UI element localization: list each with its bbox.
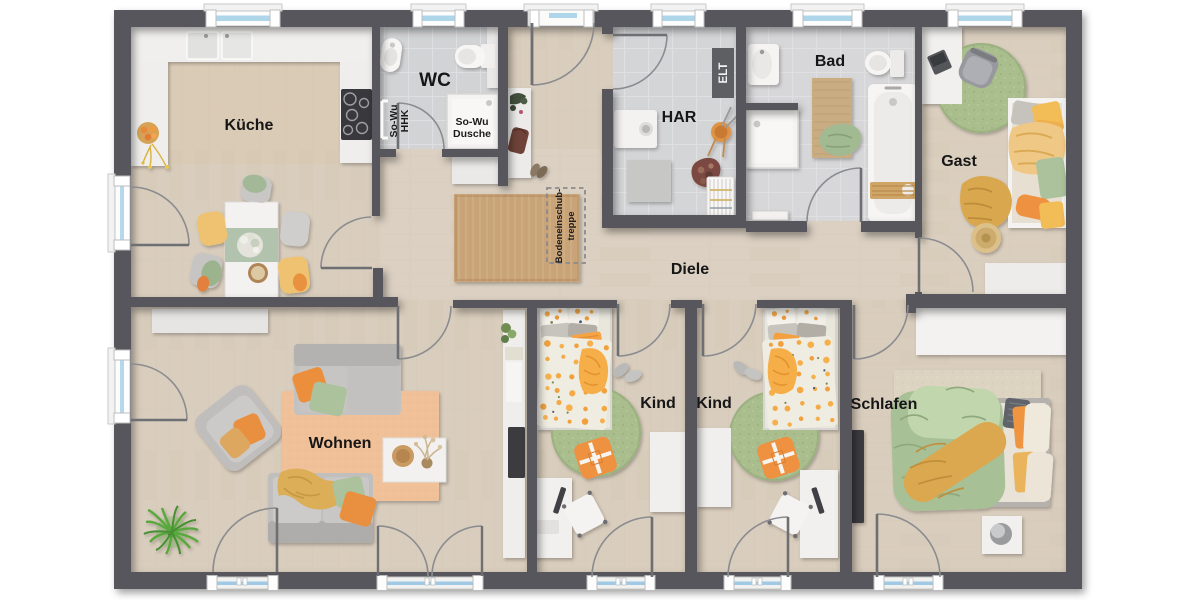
svg-text:Diele: Diele [671, 261, 709, 278]
svg-text:Schlafen: Schlafen [851, 396, 918, 413]
svg-text:WC: WC [419, 70, 451, 91]
svg-text:Bodeneinschub-: Bodeneinschub- [554, 189, 565, 263]
svg-text:Gast: Gast [941, 153, 977, 170]
svg-text:treppe: treppe [566, 211, 577, 240]
svg-text:Küche: Küche [225, 117, 274, 134]
svg-text:Wohnen: Wohnen [309, 435, 372, 452]
svg-text:ELT: ELT [718, 63, 730, 84]
svg-text:So-Wu: So-Wu [455, 116, 488, 128]
svg-text:HHK: HHK [399, 109, 411, 132]
svg-text:Dusche: Dusche [453, 128, 491, 140]
svg-text:Kind: Kind [696, 395, 732, 412]
svg-text:Kind: Kind [640, 395, 676, 412]
svg-text:Bad: Bad [815, 53, 845, 70]
svg-text:HAR: HAR [662, 109, 697, 126]
